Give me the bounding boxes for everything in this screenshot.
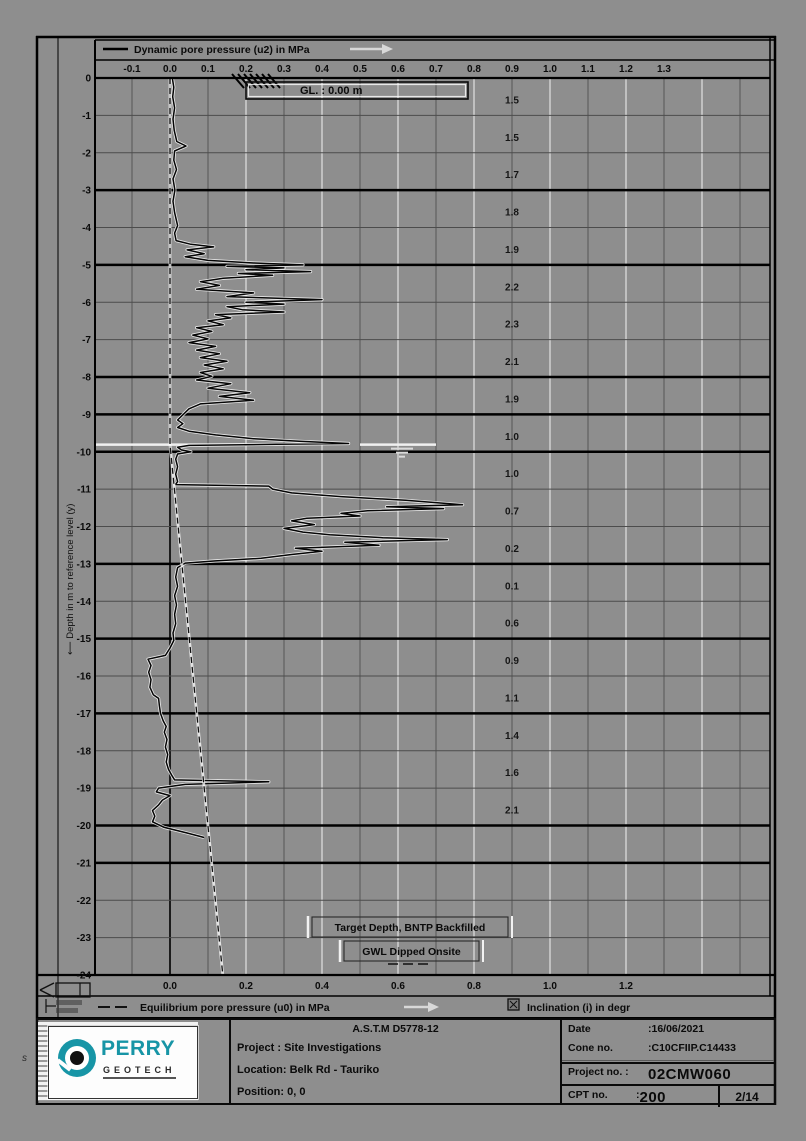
title-block: PERRY GEOTECH A.S.T.M D5778-12 Project :… xyxy=(36,1018,776,1105)
cpt-no-row: CPT no.: 200 2/14 xyxy=(562,1084,774,1107)
project-info-cell: A.S.T.M D5778-12 Project : Site Investig… xyxy=(231,1020,562,1103)
svg-text:2.1: 2.1 xyxy=(505,806,519,817)
svg-text:Equilibrium pore pressure (u0): Equilibrium pore pressure (u0) in MPa xyxy=(140,1002,330,1014)
project-value: Site Investigations xyxy=(284,1042,381,1054)
svg-text:2.3: 2.3 xyxy=(505,320,519,331)
cpt-pore-pressure-chart: Dynamic pore pressure (u2) in MPa-0.10.0… xyxy=(0,0,806,1141)
test-info-cell: Date: 16/06/2021 Cone no.: C10CFIIP.C144… xyxy=(562,1020,774,1103)
svg-text:1.0: 1.0 xyxy=(543,981,557,992)
svg-text:-4: -4 xyxy=(82,223,91,234)
svg-text:0.6: 0.6 xyxy=(391,981,405,992)
svg-text:-12: -12 xyxy=(77,522,92,533)
location-row: Location: Belk Rd - Tauriko xyxy=(237,1064,379,1076)
date-value: 16/06/2021 xyxy=(652,1023,705,1035)
svg-text:0.1: 0.1 xyxy=(505,581,519,592)
svg-text:-21: -21 xyxy=(77,858,92,869)
position-row: Position: 0, 0 xyxy=(237,1086,305,1098)
svg-text:-15: -15 xyxy=(77,634,92,645)
svg-text:0.2: 0.2 xyxy=(239,981,253,992)
svg-text:⟵ Depth in m to reference lev: ⟵ Depth in m to reference level (y) xyxy=(65,504,76,655)
date-label: Date xyxy=(568,1023,648,1035)
svg-text:1.9: 1.9 xyxy=(505,394,519,405)
logo-subname: GEOTECH xyxy=(103,1065,176,1079)
svg-text:-5: -5 xyxy=(82,260,91,271)
svg-text:2.1: 2.1 xyxy=(505,357,519,368)
cpt-no-value: 200 xyxy=(640,1089,667,1106)
scan-edge-artifact: s xyxy=(22,1053,27,1064)
svg-text:0.4: 0.4 xyxy=(315,981,329,992)
svg-text:-2: -2 xyxy=(82,148,91,159)
svg-text:1.0: 1.0 xyxy=(505,432,519,443)
svg-text:1.9: 1.9 xyxy=(505,245,519,256)
position-value: 0, 0 xyxy=(287,1086,305,1098)
svg-text:1.6: 1.6 xyxy=(505,768,519,779)
svg-text:-8: -8 xyxy=(82,373,91,384)
svg-text:0.0: 0.0 xyxy=(163,64,177,75)
cone-value: C10CFIIP.C14433 xyxy=(652,1042,736,1054)
svg-text:1.0: 1.0 xyxy=(505,469,519,480)
svg-text:-23: -23 xyxy=(77,933,92,944)
svg-text:1.1: 1.1 xyxy=(581,64,595,75)
svg-text:-13: -13 xyxy=(77,559,92,570)
svg-text:1.2: 1.2 xyxy=(619,981,633,992)
divider xyxy=(562,1060,774,1061)
svg-text:1.3: 1.3 xyxy=(657,64,671,75)
svg-text:-9: -9 xyxy=(82,410,91,421)
date-row: Date: 16/06/2021 xyxy=(568,1023,704,1035)
svg-text:-10: -10 xyxy=(77,447,92,458)
svg-text:0.9: 0.9 xyxy=(505,656,519,667)
position-label: Position: xyxy=(237,1086,284,1098)
svg-text:1.5: 1.5 xyxy=(505,133,519,144)
cone-label: Cone no. xyxy=(568,1042,648,1054)
svg-text:-17: -17 xyxy=(77,709,92,720)
svg-text:0.0: 0.0 xyxy=(163,981,177,992)
svg-text:-16: -16 xyxy=(77,672,92,683)
project-no-label: Project no. : xyxy=(568,1066,648,1083)
project-no-row: Project no. :02CMW060 xyxy=(562,1062,774,1084)
logo-name: PERRY xyxy=(101,1037,175,1061)
svg-text:Inclination (i) in degr: Inclination (i) in degr xyxy=(527,1002,630,1014)
project-label: Project : xyxy=(237,1042,281,1054)
svg-text:-19: -19 xyxy=(77,784,92,795)
svg-text:-20: -20 xyxy=(77,821,92,832)
svg-text:1.5: 1.5 xyxy=(505,95,519,106)
standard-reference: A.S.T.M D5778-12 xyxy=(231,1023,560,1035)
svg-text:-0.1: -0.1 xyxy=(123,64,141,75)
svg-text:Target Depth, BNTP Backfilled: Target Depth, BNTP Backfilled xyxy=(335,922,486,934)
svg-text:0.6: 0.6 xyxy=(391,64,405,75)
svg-text:1.4: 1.4 xyxy=(505,731,519,742)
svg-text:0.6: 0.6 xyxy=(505,619,519,630)
sheet-number: 2/14 xyxy=(718,1086,774,1107)
svg-text:-22: -22 xyxy=(77,896,92,907)
logo-cell: PERRY GEOTECH xyxy=(38,1020,231,1103)
svg-text:0.5: 0.5 xyxy=(353,64,367,75)
svg-text:0.4: 0.4 xyxy=(315,64,329,75)
svg-text:-14: -14 xyxy=(77,597,92,608)
svg-text:0.8: 0.8 xyxy=(467,64,481,75)
project-row: Project : Site Investigations xyxy=(237,1042,381,1054)
svg-text:1.2: 1.2 xyxy=(619,64,633,75)
scanned-cpt-report-page: Dynamic pore pressure (u2) in MPa-0.10.0… xyxy=(0,0,806,1141)
svg-text:0.9: 0.9 xyxy=(505,64,519,75)
svg-text:-24: -24 xyxy=(77,971,92,982)
perry-geotech-logo-icon xyxy=(58,1039,96,1077)
svg-text:1.7: 1.7 xyxy=(505,170,519,181)
svg-text:0.8: 0.8 xyxy=(467,981,481,992)
svg-text:-6: -6 xyxy=(82,298,91,309)
svg-text:-18: -18 xyxy=(77,746,92,757)
cpt-no-label: CPT no. xyxy=(568,1089,636,1106)
svg-text:GL. : 0.00 m: GL. : 0.00 m xyxy=(300,85,363,97)
svg-text:0.1: 0.1 xyxy=(201,64,215,75)
svg-text:-1: -1 xyxy=(82,111,91,122)
svg-text:0: 0 xyxy=(85,74,91,85)
location-label: Location: xyxy=(237,1064,287,1076)
svg-text:0.7: 0.7 xyxy=(429,64,443,75)
svg-text:1.8: 1.8 xyxy=(505,208,519,219)
cone-row: Cone no.: C10CFIIP.C14433 xyxy=(568,1042,736,1054)
svg-text:1.0: 1.0 xyxy=(543,64,557,75)
svg-text:-11: -11 xyxy=(77,485,91,496)
svg-text:0.2: 0.2 xyxy=(505,544,519,555)
svg-text:1.1: 1.1 xyxy=(505,693,519,704)
svg-text:2.2: 2.2 xyxy=(505,282,519,293)
svg-text:0.7: 0.7 xyxy=(505,507,519,518)
svg-text:-7: -7 xyxy=(82,335,91,346)
svg-text:0.2: 0.2 xyxy=(239,64,253,75)
location-value: Belk Rd - Tauriko xyxy=(290,1064,380,1076)
project-no-value: 02CMW060 xyxy=(648,1066,731,1083)
svg-text:Dynamic pore pressure (u2) in: Dynamic pore pressure (u2) in MPa xyxy=(134,44,310,56)
company-logo: PERRY GEOTECH xyxy=(48,1026,198,1099)
svg-text:GWL Dipped Onsite: GWL Dipped Onsite xyxy=(362,946,461,958)
svg-text:0.3: 0.3 xyxy=(277,64,291,75)
svg-text:-3: -3 xyxy=(82,186,91,197)
